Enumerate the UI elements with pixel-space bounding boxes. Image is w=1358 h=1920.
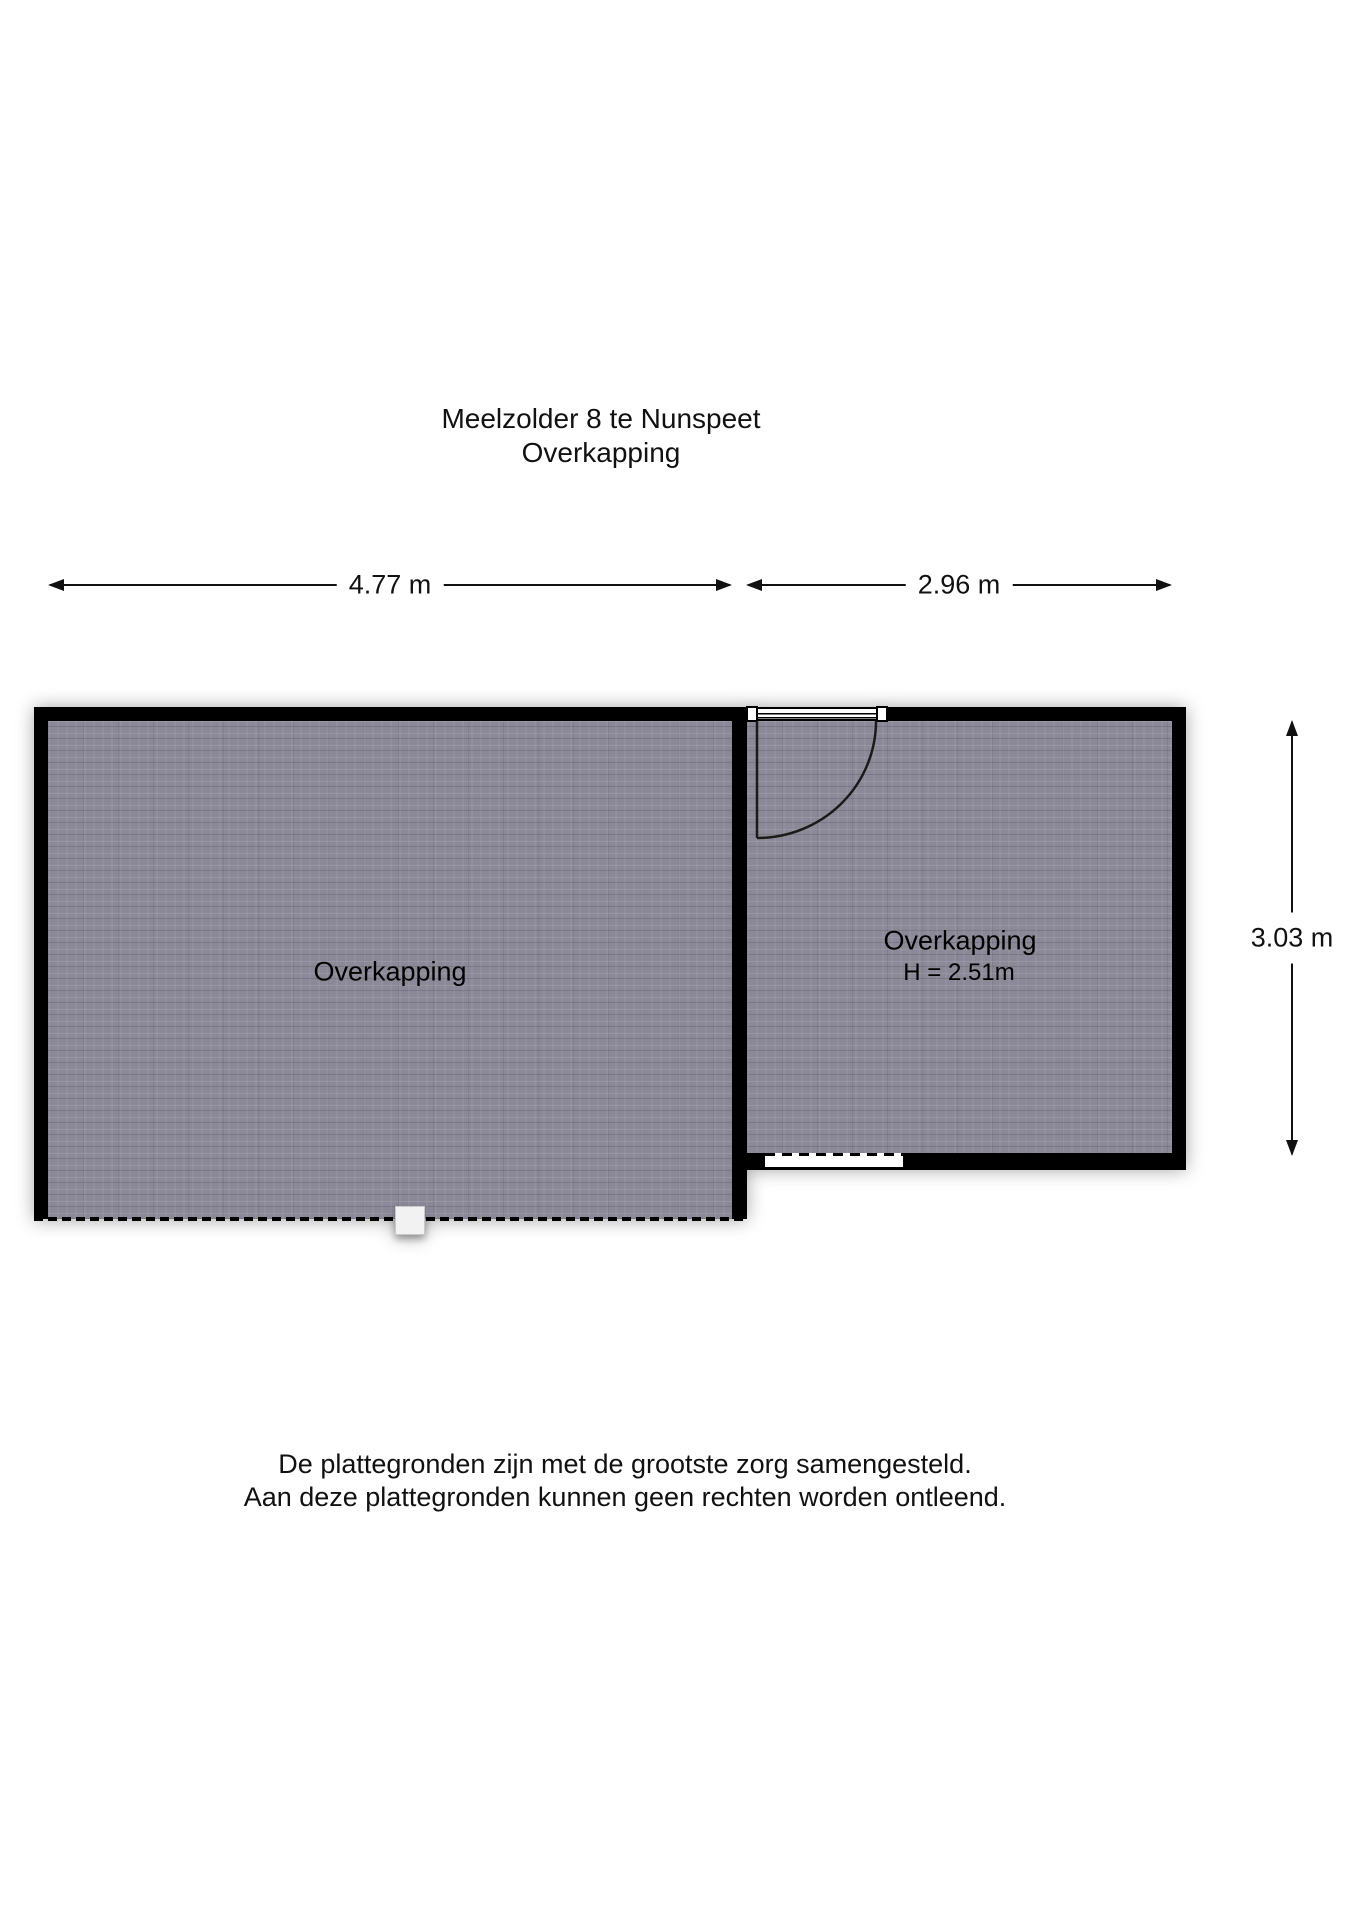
right-room-height-note: H = 2.51m	[903, 959, 1014, 987]
right-room-label: Overkapping	[883, 926, 1036, 957]
disclaimer-line-2: Aan deze plattegronden kunnen geen recht…	[0, 1481, 1250, 1514]
left-room-label: Overkapping	[313, 957, 466, 988]
disclaimer-line-1: De plattegronden zijn met de grootste zo…	[0, 1448, 1250, 1481]
door-swing-icon	[0, 0, 1358, 1920]
floorplan-page: Meelzolder 8 te Nunspeet Overkapping 4.7…	[0, 0, 1358, 1920]
post	[395, 1206, 425, 1235]
disclaimer: De plattegronden zijn met de grootste zo…	[0, 1448, 1250, 1514]
floor-plan	[0, 0, 1358, 1920]
open-edge-dashed-line	[34, 1217, 747, 1221]
